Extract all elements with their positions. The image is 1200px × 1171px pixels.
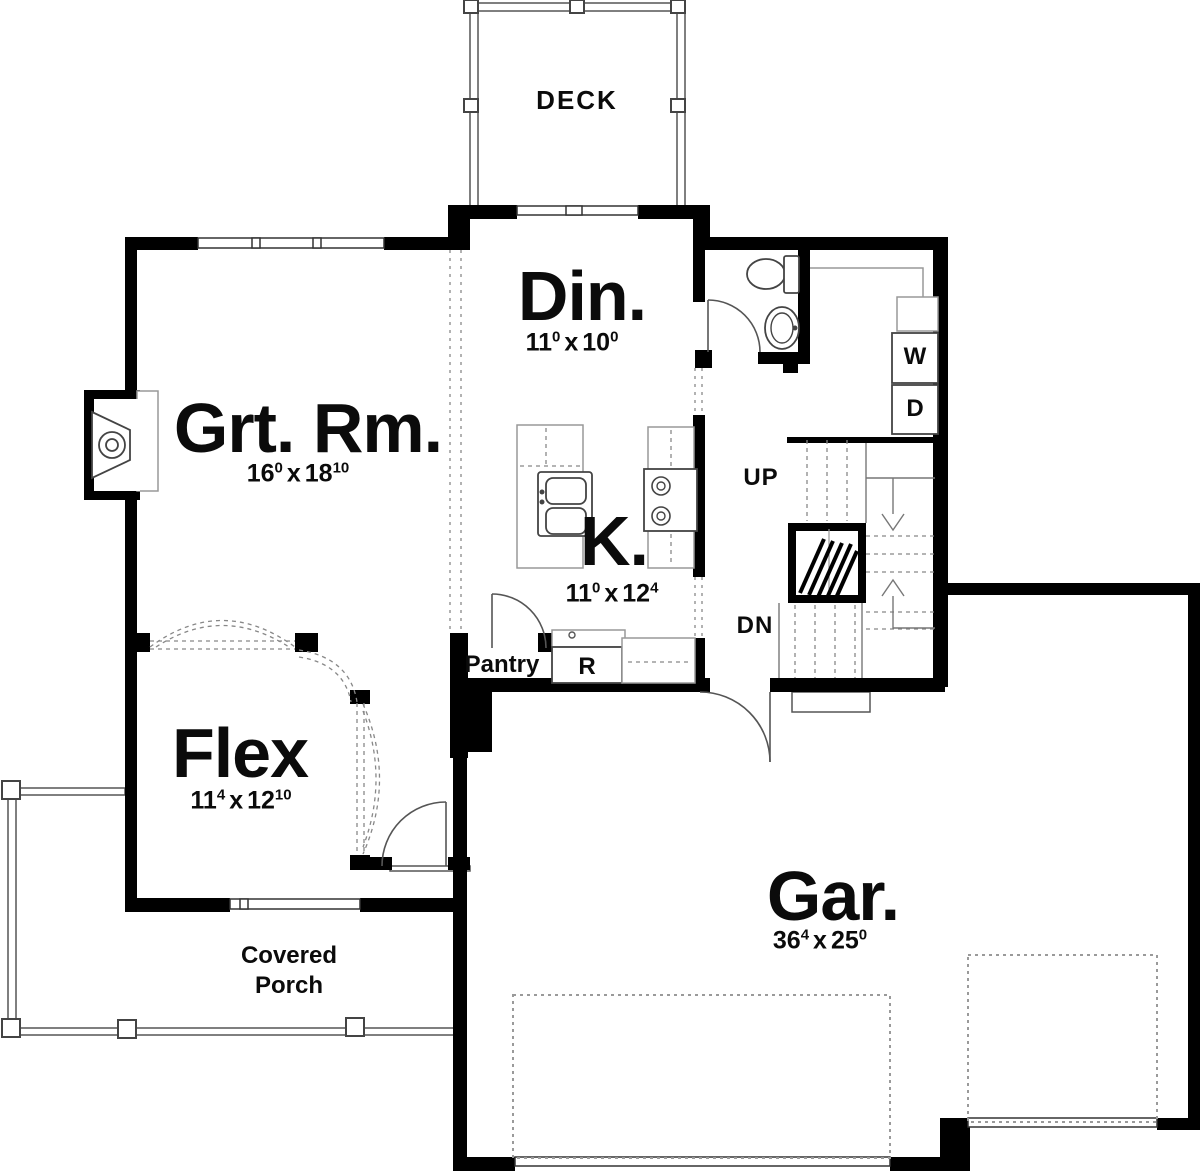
- flex-room-dimensions: 114x1210: [190, 789, 291, 814]
- deck-label: DECK: [536, 87, 618, 113]
- dim-width: 16: [247, 460, 275, 488]
- bathroom-sink-icon: [765, 307, 799, 349]
- pantry-label: Pantry: [465, 653, 540, 677]
- wall-segment: [1188, 583, 1200, 1130]
- dim-width-inches: 0: [275, 460, 283, 477]
- window-tick: [566, 206, 582, 215]
- wall-segment: [770, 678, 945, 692]
- wall-segment: [783, 357, 798, 373]
- range-icon: [644, 427, 697, 568]
- window: [230, 899, 360, 909]
- wall-segment: [695, 350, 712, 368]
- dim-separator: x: [809, 927, 831, 955]
- wall-segment: [1157, 1118, 1200, 1130]
- dim-height-inches: 0: [610, 329, 618, 346]
- flex-room-label: Flex: [172, 718, 308, 788]
- garage-label: Gar.: [767, 861, 899, 931]
- dim-height: 18: [305, 460, 333, 488]
- wall-segment: [787, 437, 945, 443]
- garage-dimensions: 364x250: [773, 929, 867, 954]
- dim-height-inches: 10: [333, 460, 350, 477]
- staircase: [779, 440, 935, 678]
- refrigerator-label: R: [578, 655, 595, 679]
- wall-segment: [468, 685, 492, 752]
- porch-post: [2, 1019, 20, 1037]
- dim-separator: x: [600, 580, 622, 608]
- stairs-up-label: UP: [743, 466, 778, 490]
- dim-height-inches: 10: [275, 787, 292, 804]
- washer-label: W: [904, 345, 927, 369]
- toilet-icon: [747, 256, 799, 293]
- dim-separator: x: [225, 787, 247, 815]
- wall-segment: [125, 237, 137, 912]
- porch-post: [671, 99, 685, 112]
- rail-line: [8, 788, 125, 795]
- wall-segment: [700, 237, 945, 250]
- covered-porch-line2: Porch: [179, 971, 399, 1001]
- kitchen-label: K.: [580, 506, 648, 576]
- wall-segment: [890, 1157, 957, 1171]
- porch-post: [464, 99, 478, 112]
- fireplace-icon: [92, 391, 158, 491]
- wall-segment: [448, 857, 470, 870]
- window-tick: [313, 238, 321, 248]
- dim-width-inches: 4: [217, 787, 225, 804]
- floor-plan: DECK Din. 110x100 Grt. Rm. 160x1810 K. 1…: [0, 0, 1200, 1171]
- dim-width-inches: 0: [552, 329, 560, 346]
- dryer-label: D: [906, 397, 923, 421]
- great-room-label: Grt. Rm.: [174, 393, 442, 463]
- wall-segment: [455, 205, 517, 219]
- window: [198, 238, 384, 248]
- dim-height: 12: [622, 580, 650, 608]
- porch-post: [2, 781, 20, 799]
- dim-width-inches: 0: [592, 580, 600, 597]
- rail-line: [8, 788, 16, 1035]
- porch-post: [570, 0, 584, 13]
- covered-porch-line1: Covered: [179, 941, 399, 971]
- dim-separator: x: [283, 460, 305, 488]
- wall-segment: [350, 690, 370, 704]
- dim-height: 10: [582, 329, 610, 357]
- rail-line: [792, 692, 870, 712]
- dim-height-inches: 4: [650, 580, 658, 597]
- wall-segment: [125, 898, 230, 912]
- wall-segment: [350, 857, 392, 870]
- refrigerator-counter-icons: [552, 630, 695, 683]
- dim-height-inches: 0: [859, 927, 867, 944]
- garage-bay-outline: [513, 995, 890, 1158]
- porch-post: [118, 1020, 136, 1038]
- wall-segment: [360, 898, 460, 912]
- dim-width: 11: [566, 580, 592, 608]
- wall-segment: [125, 633, 150, 652]
- rail-line: [8, 1028, 455, 1035]
- wall-segment: [295, 633, 318, 652]
- wall-segment: [945, 583, 1200, 595]
- dim-width: 11: [190, 787, 216, 815]
- window-tick: [240, 899, 248, 909]
- dim-width: 36: [773, 927, 801, 955]
- covered-porch-label: Covered Porch: [179, 941, 399, 1001]
- dim-width-inches: 4: [801, 927, 809, 944]
- wall-segment: [798, 237, 810, 364]
- dining-label: Din.: [518, 261, 646, 331]
- great-room-dimensions: 160x1810: [247, 462, 350, 487]
- wall-segment: [693, 250, 705, 302]
- wall-segment: [453, 690, 467, 1160]
- porch-post: [671, 0, 685, 13]
- dim-separator: x: [560, 329, 582, 357]
- kitchen-dimensions: 110x124: [566, 582, 659, 607]
- porch-post: [346, 1018, 364, 1036]
- dim-width: 11: [526, 329, 552, 357]
- dim-height: 25: [831, 927, 859, 955]
- garage-bay-outline: [968, 955, 1157, 1122]
- porch-post: [464, 0, 478, 13]
- window-tick: [252, 238, 260, 248]
- dim-height: 12: [247, 787, 275, 815]
- stairs-down-label: DN: [737, 614, 774, 638]
- dining-dimensions: 110x100: [526, 331, 619, 356]
